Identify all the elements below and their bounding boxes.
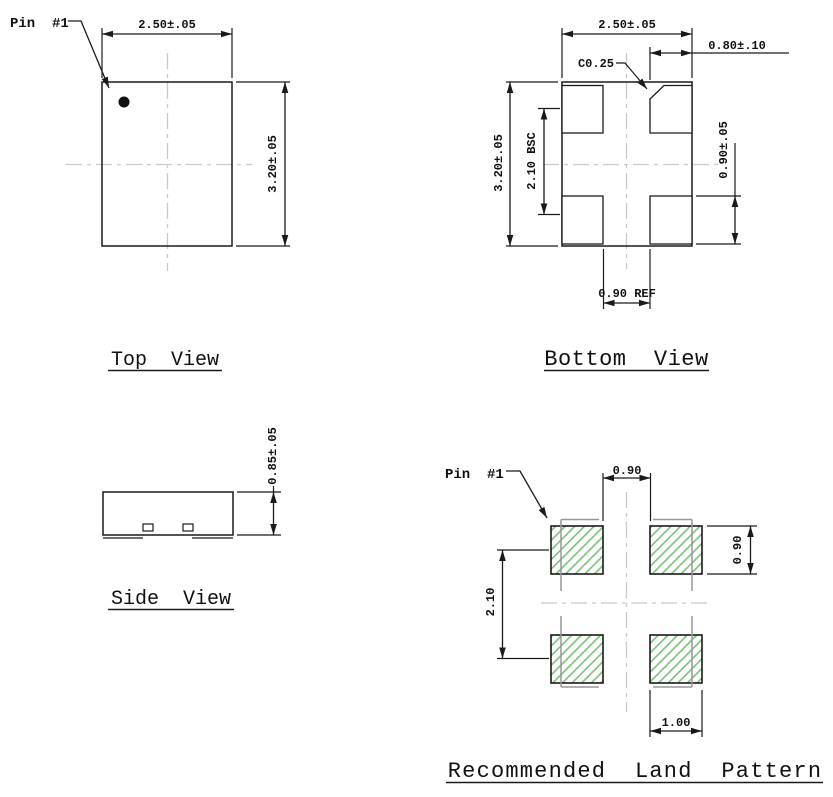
pin1-leader-line — [68, 21, 109, 88]
drawing-canvas: Pin #1 2.50±.05 3.20±.05 Top View — [0, 0, 833, 797]
bottom-pad-2-chamfered — [650, 86, 692, 134]
dim-land-gap-x-label: 0.90 — [613, 464, 642, 478]
dim-land-pitch-y: 2.10 — [484, 550, 549, 659]
pin1-label: Pin #1 — [10, 16, 69, 32]
land-pin1-label: Pin #1 — [445, 467, 504, 483]
package-drawing-sheet: Pin #1 2.50±.05 3.20±.05 Top View — [0, 0, 833, 797]
dim-land-pitch-y-label: 2.10 — [484, 588, 498, 617]
dim-chamfer-label: C0.25 — [578, 57, 614, 71]
land-pin1-leader-line — [506, 471, 547, 518]
dim-top-width-label: 2.50±.05 — [138, 18, 196, 32]
dim-land-pad-height: 0.90 — [707, 526, 757, 574]
dim-pad-gap-label: 0.90 REF — [598, 287, 656, 301]
dim-side-height-label: 0.85±.05 — [266, 427, 280, 485]
dim-top-height: 3.20±.05 — [236, 82, 290, 246]
land-pattern: Pin #1 0.90 0.90 2.10 1.00 Recommended L… — [445, 464, 823, 784]
side-view-title: Side View — [111, 588, 231, 611]
dim-land-pad-height-label: 0.90 — [731, 536, 745, 565]
dim-side-height: 0.85±.05 — [237, 427, 281, 535]
land-pad-4 — [650, 635, 702, 683]
bottom-pad-3 — [562, 196, 603, 244]
land-pad-2 — [650, 526, 702, 574]
bottom-pad-1 — [562, 86, 603, 134]
land-pad-3 — [551, 635, 603, 683]
land-pad-1 — [551, 526, 603, 574]
dim-land-pad-width-label: 1.00 — [662, 716, 691, 730]
side-view-pad-window-2 — [183, 524, 193, 531]
side-view-pad-window-1 — [143, 524, 153, 531]
dim-bottom-height-label: 3.20±.05 — [492, 134, 506, 192]
dim-pad-width: 0.80±.10 — [650, 39, 789, 80]
top-view: Pin #1 2.50±.05 3.20±.05 Top View — [10, 16, 290, 372]
dim-bottom-width-label: 2.50±.05 — [598, 18, 656, 32]
dim-pad-pitch: 2.10 BSC — [525, 109, 560, 215]
bottom-view-title: Bottom View — [544, 347, 708, 372]
top-view-centerlines — [66, 53, 252, 271]
land-pattern-title: Recommended Land Pattern — [448, 759, 822, 784]
top-view-title: Top View — [111, 349, 219, 372]
side-view-package-outline — [103, 492, 233, 535]
dim-pad-height: 0.90±.05 — [696, 121, 741, 244]
dim-chamfer: C0.25 — [578, 57, 647, 89]
dim-pad-height-label: 0.90±.05 — [717, 121, 731, 179]
side-view: 0.85±.05 Side View — [103, 427, 281, 611]
pin1-dot — [119, 97, 130, 108]
dim-top-height-label: 3.20±.05 — [266, 135, 280, 193]
dim-pad-pitch-label: 2.10 BSC — [525, 132, 539, 190]
bottom-view: 2.50±.05 0.80±.10 C0.25 3.20±.05 2.10 BS… — [492, 18, 789, 372]
dim-land-pad-width: 1.00 — [650, 690, 702, 737]
bottom-pad-4 — [650, 196, 692, 244]
dim-pad-width-label: 0.80±.10 — [708, 39, 766, 53]
